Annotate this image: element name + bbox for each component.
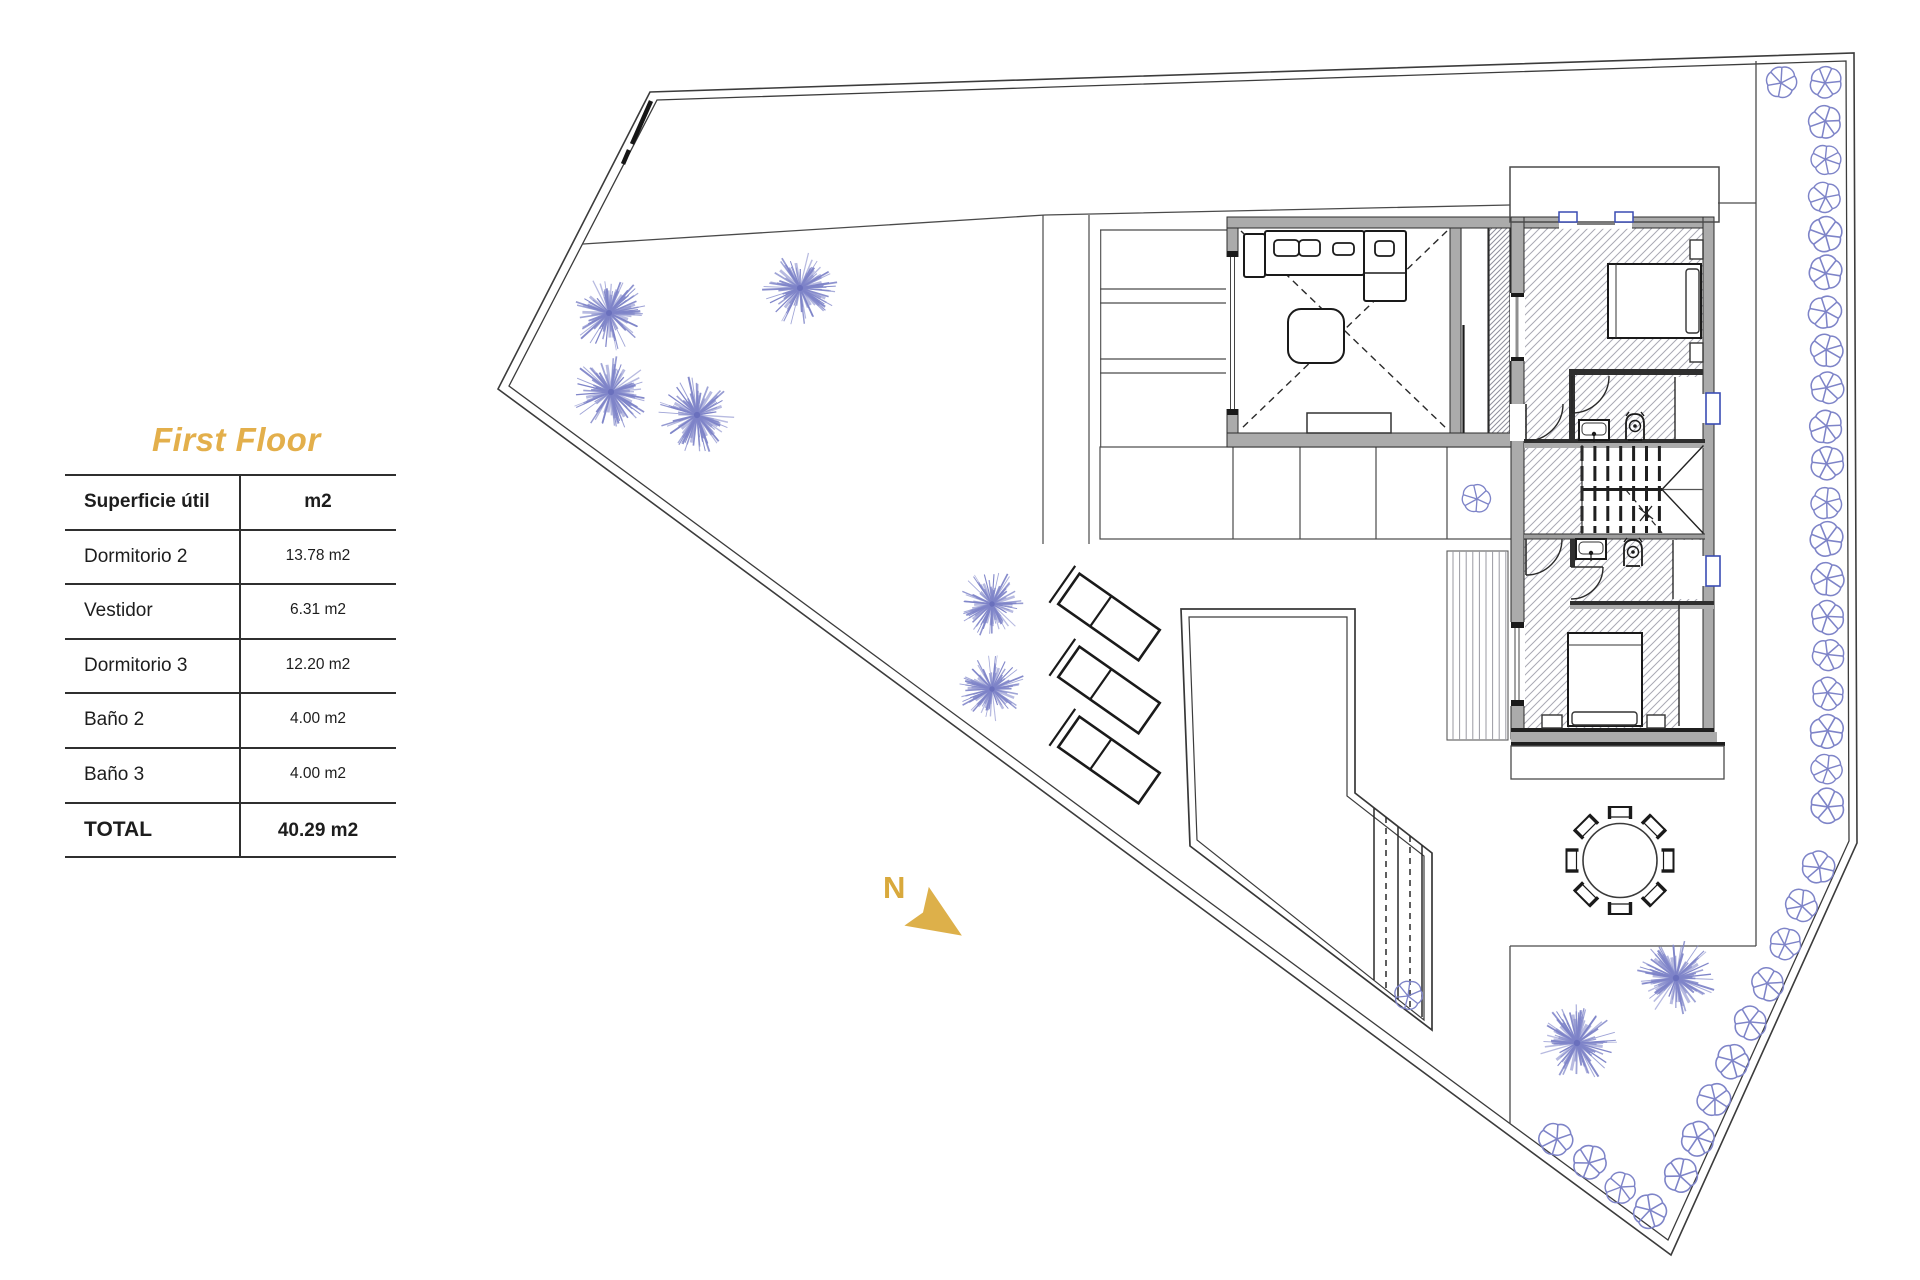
svg-text:N: N: [883, 870, 905, 905]
